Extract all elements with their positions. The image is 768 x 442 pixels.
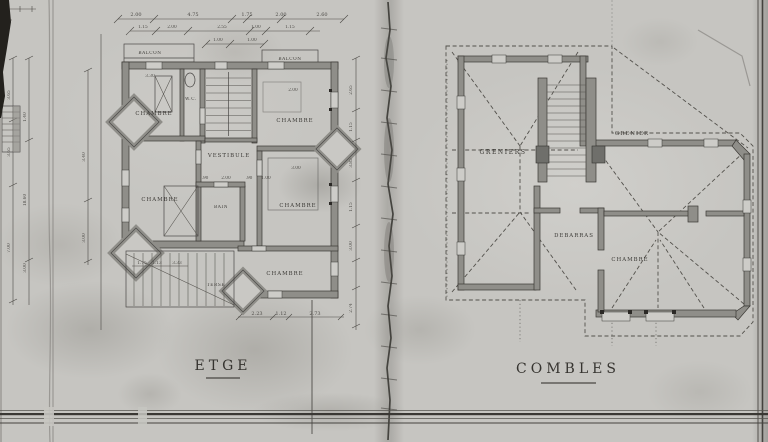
paper-creases [0, 0, 763, 442]
room-label-chambre: CHAMBRE [135, 111, 172, 117]
sheet-border-lines [0, 407, 768, 426]
left-plan: 2.00 4.75 1.75 2.00 2.60 1.15 2.00 2.55 … [109, 12, 358, 378]
dim-label: 2.65 [349, 85, 354, 95]
room-label-balcon: BALCON [278, 57, 301, 62]
left-plan-bottom-dimensions: 2.23 1.12 2.73 [236, 311, 344, 320]
room-label-greniers: GRENIERS [479, 149, 526, 156]
chimney [592, 146, 605, 163]
dim-label: 2.55 [217, 25, 227, 30]
dim-label: 3.33 [172, 261, 182, 266]
drawing-svg: 3.65 3.65 7.00 1.40 18.60 3.00 3.40 3.00… [0, 0, 768, 442]
dim-label: 1.00 [261, 176, 271, 181]
plan-title-combles: COMBLES [516, 361, 620, 377]
attic-staircase [536, 78, 605, 182]
dim-label: 1.15 [349, 202, 354, 212]
room-label-chambre: CHAMBRE [276, 118, 313, 124]
right-plan-walls [458, 56, 750, 320]
dim-label: 2.60 [316, 12, 327, 18]
scanned-plan-sheet: 3.65 3.65 7.00 1.40 18.60 3.00 3.40 3.00… [0, 0, 768, 442]
room-label-bain: BAIN [214, 205, 228, 210]
bay-windows [109, 97, 358, 312]
dim-label: 2.00 [288, 88, 298, 93]
dim-label: 2.74 [349, 303, 354, 313]
room-label-grenier: GRENIER [615, 131, 649, 137]
dim-label: 3.65 [7, 147, 12, 157]
dim-label: 2.00 [167, 25, 177, 30]
dim-label: 3.00 [23, 263, 28, 273]
dim-label: 1.40 [23, 112, 28, 122]
dim-label: 1.15 [138, 25, 148, 30]
dim-label: 1.75 [137, 261, 147, 266]
plan-title-etage: ETGE [195, 358, 252, 374]
dim-label: 2.73 [309, 311, 320, 317]
dim-label: 1.13 [152, 261, 162, 266]
left-plan-room-labels: CHAMBRE CHAMBRE W.C. VESTIBULE CHAMBRE B… [135, 97, 316, 288]
dim-label: 2.00 [130, 12, 141, 18]
dim-label: 3.30 [145, 74, 155, 79]
room-label-chambre: CHAMBRE [141, 197, 178, 203]
dim-label: 7.00 [7, 243, 12, 253]
dim-label: 1.00 [251, 25, 261, 30]
dim-label: 2.00 [221, 176, 231, 181]
dim-label: 1.15 [349, 122, 354, 132]
dim-label: 3.00 [349, 241, 354, 251]
dim-label: 4.75 [187, 12, 198, 18]
dim-label: 1.00 [213, 38, 223, 43]
right-plan-room-labels: GRENIERS GRENIER DEBARRAS CHAMBRE [479, 131, 649, 263]
dim-label: 3.40 [82, 152, 87, 162]
dim-label: 3.00 [82, 233, 87, 243]
left-plan-top-dimensions: 2.00 4.75 1.75 2.00 2.60 1.15 2.00 2.55 … [114, 12, 348, 48]
dim-label: .90 [246, 176, 253, 181]
main-staircase [185, 72, 251, 136]
dim-label: 18.60 [23, 194, 28, 207]
dim-label: 2.00 [275, 12, 286, 18]
dim-label: 1.75 [241, 12, 252, 18]
border-fold-gap [138, 407, 147, 426]
room-label-wc: W.C. [185, 97, 197, 102]
dim-label: .90 [202, 176, 209, 181]
right-plan: GRENIERS GRENIER DEBARRAS CHAMBRE COMBLE… [446, 46, 753, 383]
dim-label: 1.12 [275, 311, 286, 317]
dim-label: 1.00 [247, 38, 257, 43]
chimney [536, 146, 549, 163]
room-label-vestibule: VESTIBULE [207, 153, 250, 159]
roof-hip-lines [447, 48, 748, 346]
room-label-balcon: BALCON [138, 51, 161, 56]
dim-label: 1.15 [285, 25, 295, 30]
dim-label: 3.85 [349, 158, 354, 168]
dim-label: 3.65 [7, 90, 12, 100]
balconies: BALCON BALCON [124, 44, 318, 64]
room-label-chambre: CHAMBRE [266, 271, 303, 277]
room-label-chambre: CHAMBRE [611, 257, 648, 263]
border-fold-gap [44, 407, 54, 426]
room-label-chambre: CHAMBRE [279, 203, 316, 209]
room-label-debarras: DEBARRAS [554, 233, 594, 239]
room-label-terrasse: TERSE [207, 283, 225, 288]
dim-label: 3.00 [291, 166, 301, 171]
dim-label: 2.23 [251, 311, 262, 317]
middle-dimension-chain: 2.65 1.15 3.85 1.15 3.00 2.74 [349, 56, 360, 330]
left-plan-interior-dimensions: 3.30 2.00 3.00 .90 2.00 .90 1.00 [145, 74, 301, 181]
